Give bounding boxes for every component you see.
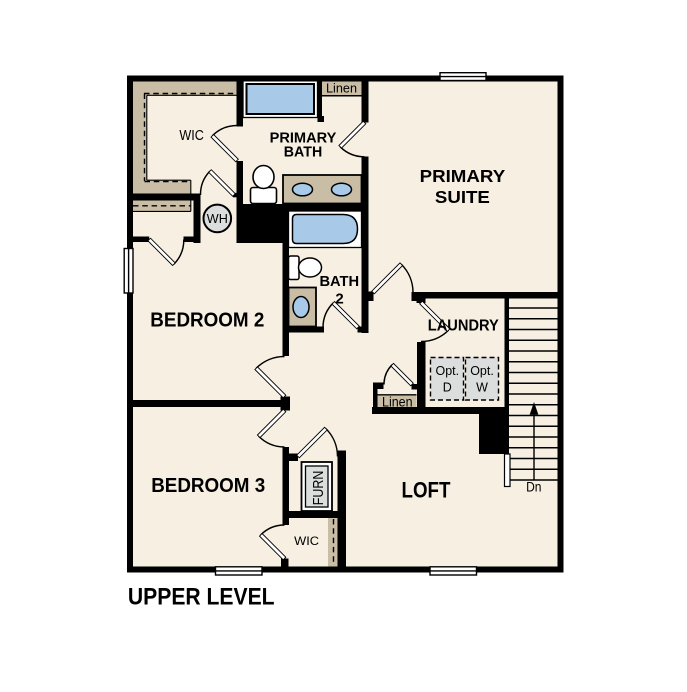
svg-text:SUITE: SUITE (435, 187, 490, 207)
svg-text:BATH: BATH (284, 144, 322, 161)
svg-text:2: 2 (335, 291, 343, 308)
svg-text:W: W (476, 380, 488, 394)
svg-text:Linen: Linen (382, 394, 413, 409)
svg-text:FURN: FURN (311, 471, 327, 506)
svg-text:BATH: BATH (319, 273, 359, 290)
svg-text:UPPER LEVEL: UPPER LEVEL (128, 584, 275, 611)
svg-text:D: D (443, 380, 452, 394)
svg-text:WIC: WIC (294, 534, 319, 548)
svg-text:BEDROOM 2: BEDROOM 2 (150, 309, 264, 331)
svg-text:BEDROOM 3: BEDROOM 3 (151, 475, 265, 497)
svg-text:PRIMARY: PRIMARY (420, 166, 506, 186)
svg-text:Dn: Dn (526, 480, 541, 495)
svg-text:Opt.: Opt. (470, 364, 494, 378)
svg-text:WH: WH (207, 212, 228, 226)
svg-text:Linen: Linen (326, 82, 357, 96)
svg-text:LAUNDRY: LAUNDRY (428, 318, 499, 335)
svg-text:LOFT: LOFT (402, 477, 451, 502)
svg-text:Opt.: Opt. (436, 364, 460, 378)
svg-text:WIC: WIC (179, 127, 204, 144)
